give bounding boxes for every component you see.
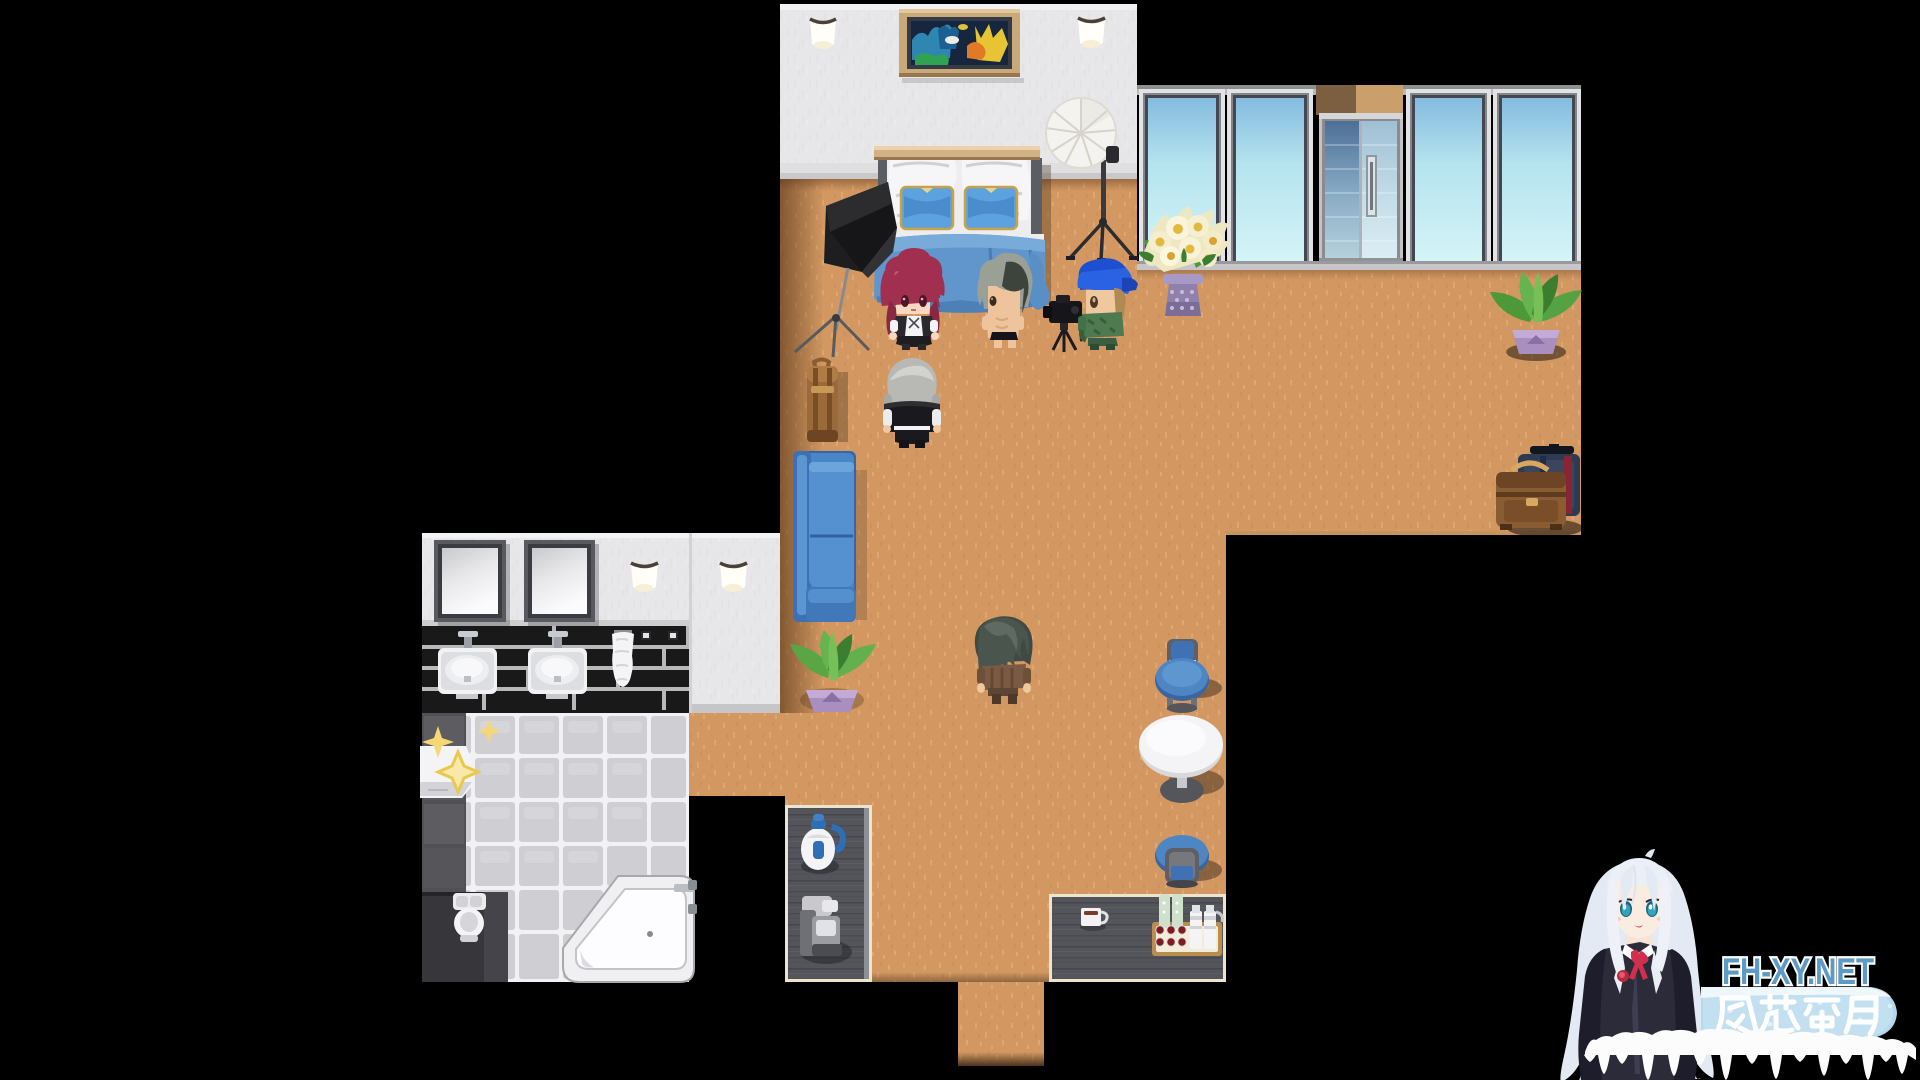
svg-text:FH-XY.NET: FH-XY.NET — [1722, 951, 1874, 992]
